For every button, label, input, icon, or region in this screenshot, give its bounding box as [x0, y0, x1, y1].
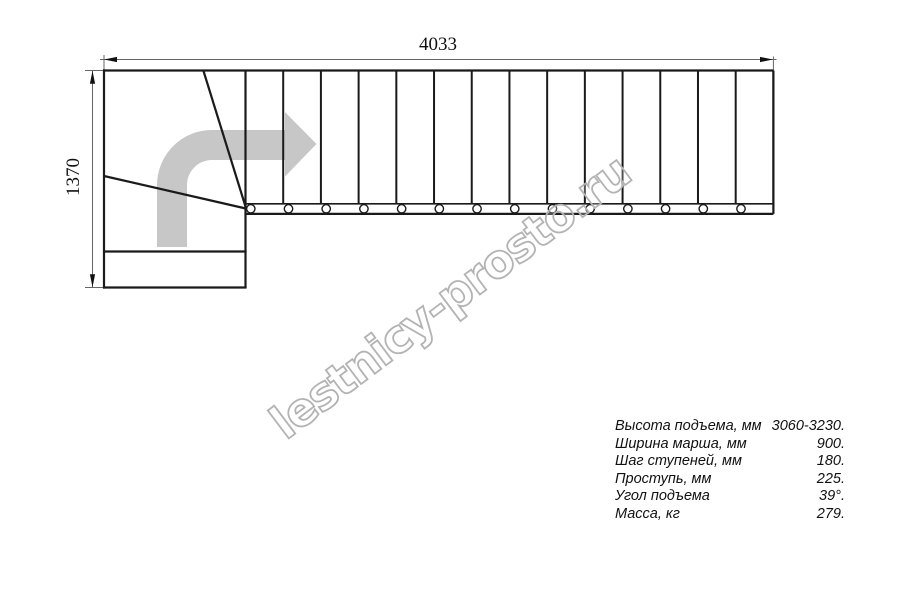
bolt-hole-icon — [699, 205, 707, 213]
stair-outline — [103, 69, 774, 288]
specs-table: Высота подъема, мм3060-3230.Ширина марша… — [615, 418, 845, 524]
bolt-hole-icon — [322, 205, 330, 213]
bolt-holes-group — [247, 205, 746, 213]
spec-label: Масса, кг — [615, 506, 680, 524]
spec-value: 180. — [817, 453, 845, 471]
spec-label: Ширина марша, мм — [615, 436, 747, 454]
dimension-arrowheads — [90, 57, 773, 287]
spec-value: 225. — [817, 471, 845, 489]
spec-value: 39°. — [819, 488, 845, 506]
spec-value: 279. — [817, 506, 845, 524]
arrowhead-right — [760, 57, 773, 62]
spec-label: Высота подъема, мм — [615, 418, 762, 436]
step-lines-group — [283, 71, 773, 204]
stair-plan-drawing: 4033 1370 lestnicy-prosto.ru Высота подъ… — [0, 0, 900, 600]
spec-row: Масса, кг279. — [615, 506, 845, 524]
bolt-hole-icon — [284, 205, 292, 213]
bolt-hole-icon — [548, 205, 556, 213]
spec-value: 900. — [817, 436, 845, 454]
spec-value: 3060-3230. — [772, 418, 845, 436]
arrowhead-up — [90, 71, 95, 84]
bolt-hole-icon — [511, 205, 519, 213]
bolt-hole-icon — [397, 205, 405, 213]
bolt-hole-icon — [624, 205, 632, 213]
bolt-hole-icon — [435, 205, 443, 213]
total-depth-dimension-label: 1370 — [64, 146, 84, 208]
spec-row: Ширина марша, мм900. — [615, 436, 845, 454]
spec-row: Высота подъема, мм3060-3230. — [615, 418, 845, 436]
bolt-hole-icon — [737, 205, 745, 213]
bolt-hole-icon — [247, 205, 255, 213]
arrowhead-left — [104, 57, 117, 62]
spec-row: Шаг ступеней, мм180. — [615, 453, 845, 471]
bolt-hole-icon — [586, 205, 594, 213]
spec-label: Угол подъема — [615, 488, 710, 506]
spec-row: Угол подъема39°. — [615, 488, 845, 506]
arrowhead-down — [90, 274, 95, 287]
spec-label: Шаг ступеней, мм — [615, 453, 742, 471]
bolt-hole-icon — [360, 205, 368, 213]
bolt-hole-icon — [473, 205, 481, 213]
spec-label: Проступь, мм — [615, 471, 711, 489]
total-length-dimension-label: 4033 — [408, 34, 468, 56]
spec-row: Проступь, мм225. — [615, 471, 845, 489]
bolt-hole-icon — [661, 205, 669, 213]
